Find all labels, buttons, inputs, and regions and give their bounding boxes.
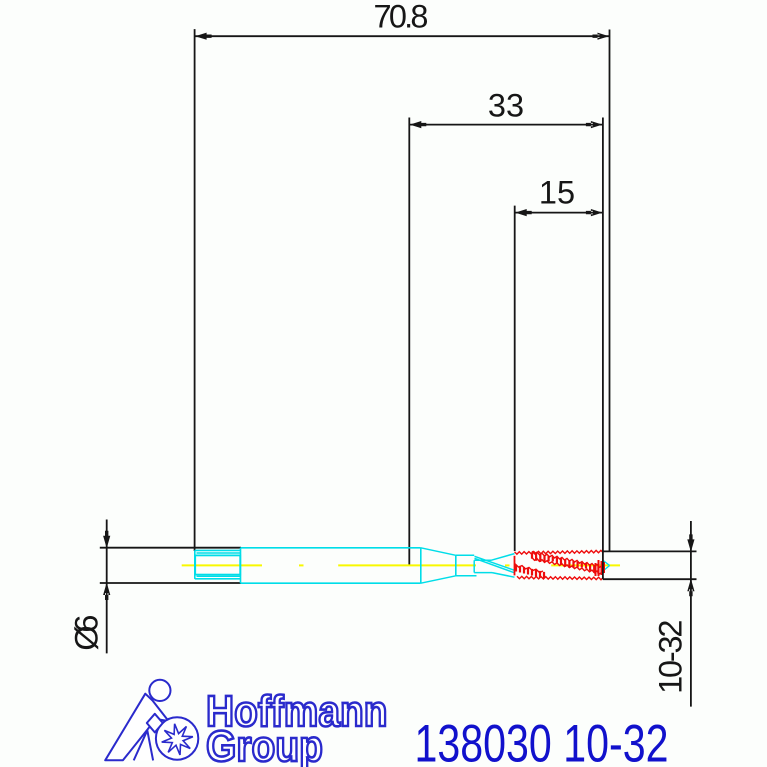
svg-text:15: 15 [539,175,575,211]
svg-text:10-32: 10-32 [653,620,689,694]
svg-text:33: 33 [488,88,524,124]
svg-text:Group: Group [206,723,323,767]
svg-text:Ø6: Ø6 [69,615,105,651]
svg-text:70.8: 70.8 [374,0,429,35]
svg-text:138030 10-32: 138030 10-32 [415,714,669,767]
